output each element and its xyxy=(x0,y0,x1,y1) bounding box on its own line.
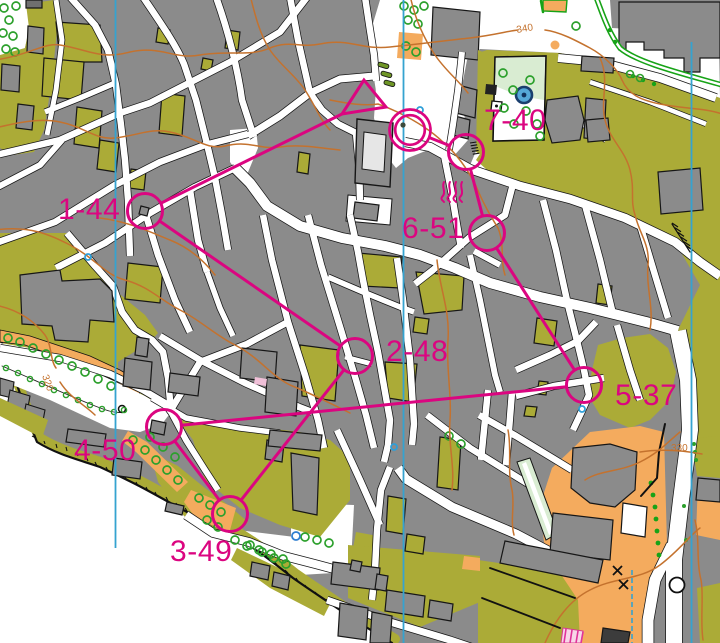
svg-text:6-51: 6-51 xyxy=(402,212,464,245)
svg-text:7-40: 7-40 xyxy=(484,104,546,137)
svg-text:3-49: 3-49 xyxy=(170,535,232,568)
svg-text:330: 330 xyxy=(671,443,688,454)
svg-text:4-50: 4-50 xyxy=(74,434,136,467)
svg-text:5-37: 5-37 xyxy=(615,379,677,412)
svg-text:2-48: 2-48 xyxy=(386,335,448,368)
svg-text:1-44: 1-44 xyxy=(58,193,120,226)
